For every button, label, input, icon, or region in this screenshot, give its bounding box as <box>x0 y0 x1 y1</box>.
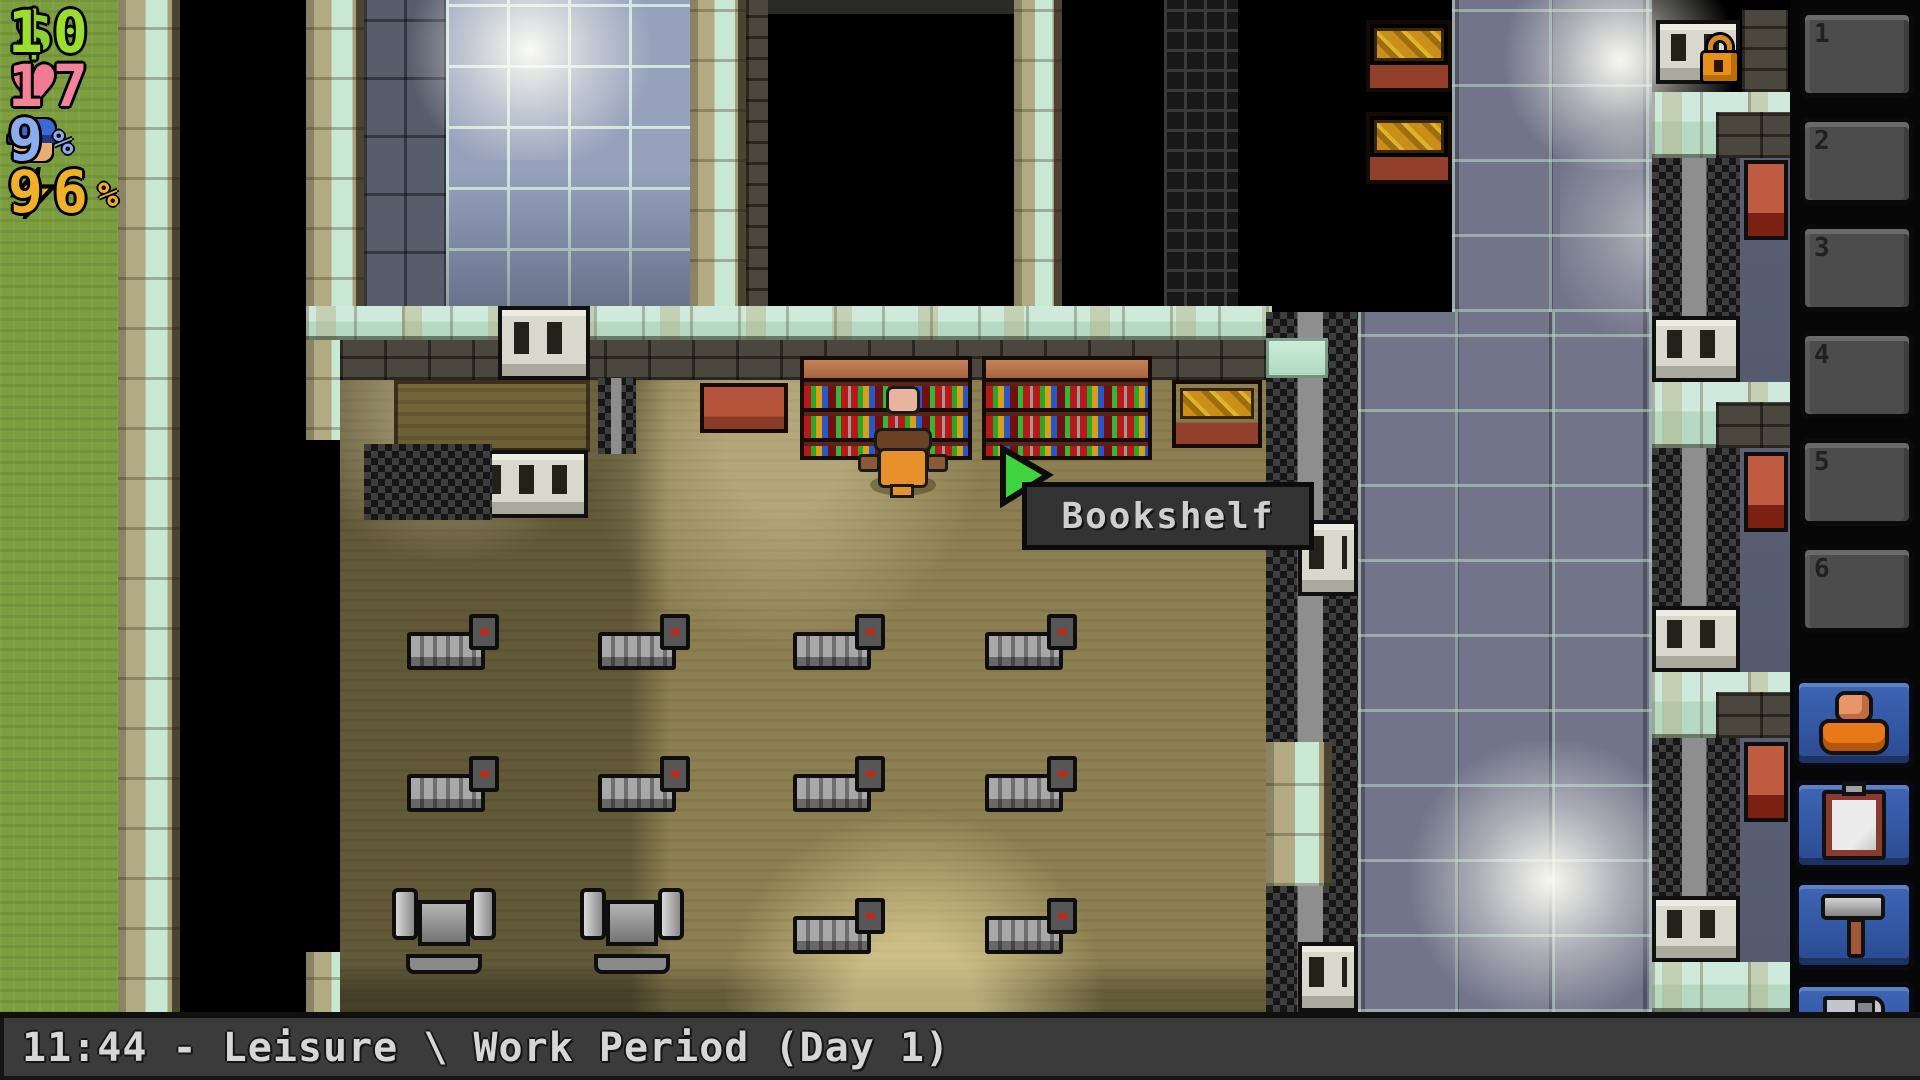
stone-wall <box>364 0 446 312</box>
stone-wall <box>1716 112 1790 158</box>
stone-wall <box>746 0 768 312</box>
chain-fence <box>598 378 636 454</box>
inventory-slot-5[interactable]: 5 <box>1800 438 1914 526</box>
wooden-desk[interactable] <box>1366 20 1452 92</box>
library-bench[interactable] <box>407 756 499 812</box>
character-arm <box>858 454 880 472</box>
wall-band <box>306 306 1272 340</box>
library-bench[interactable] <box>793 898 885 954</box>
wooden-desk[interactable] <box>1366 112 1452 184</box>
object-tooltip: Bookshelf <box>1022 482 1314 550</box>
cell-door[interactable] <box>1652 606 1740 672</box>
prison-bed[interactable] <box>1744 452 1788 532</box>
book-row <box>986 386 1148 412</box>
chain-fence <box>364 444 492 520</box>
hud-energy: 96% <box>8 166 60 220</box>
padlock-icon[interactable] <box>1700 50 1740 84</box>
status-bar: 11:44 - Leisure \ Work Period (Day 1) <box>0 1012 1920 1080</box>
library-bench[interactable] <box>598 756 690 812</box>
inventory-slot-4[interactable]: 4 <box>1800 331 1914 419</box>
journal-button[interactable] <box>1794 780 1914 870</box>
chain-fence <box>1652 448 1740 606</box>
entry-floor <box>394 380 590 452</box>
character-head <box>886 386 920 414</box>
wall-column <box>1014 0 1062 312</box>
character-arm <box>926 454 948 472</box>
tiled-hall <box>1358 312 1652 1012</box>
glass-tile-room <box>446 0 690 312</box>
wooden-desk[interactable] <box>1172 380 1262 448</box>
chain-fence <box>1652 738 1740 896</box>
prison-bed[interactable] <box>1744 160 1788 240</box>
library-bench[interactable] <box>793 756 885 812</box>
library-bench[interactable] <box>598 614 690 670</box>
dark-desk[interactable] <box>1742 10 1788 92</box>
prisoner-profile-button[interactable] <box>1794 678 1914 768</box>
tiled-hall <box>1452 0 1652 312</box>
crafting-button[interactable] <box>1794 880 1914 970</box>
clipboard-icon <box>1822 790 1886 860</box>
inventory-slot-3[interactable]: 3 <box>1800 224 1914 312</box>
vent-grate <box>1164 0 1238 312</box>
inventory-slot-1[interactable]: 1 <box>1800 10 1914 98</box>
barred-door[interactable] <box>498 306 590 380</box>
library-bench[interactable] <box>985 898 1077 954</box>
library-bench[interactable] <box>985 756 1077 812</box>
library-bench[interactable] <box>407 614 499 670</box>
stone-wall <box>1716 402 1790 448</box>
red-table[interactable] <box>700 383 788 433</box>
wall-column <box>690 0 746 312</box>
prison-bed[interactable] <box>1744 742 1788 822</box>
cell-door[interactable] <box>1652 316 1740 382</box>
status-bar-text: 11:44 - Leisure \ Work Period (Day 1) <box>0 1018 950 1078</box>
inventory-slot-6[interactable]: 6 <box>1800 545 1914 633</box>
barred-door[interactable] <box>1298 942 1358 1012</box>
library-bench[interactable] <box>793 614 885 670</box>
stone-wall <box>1716 692 1790 738</box>
wall-segment <box>1266 742 1332 886</box>
chain-fence <box>1652 158 1740 316</box>
character-torso <box>878 448 928 488</box>
glass-block <box>1266 338 1328 378</box>
prisoner-character[interactable] <box>858 378 948 504</box>
book-row <box>986 416 1148 442</box>
chain-fence <box>1266 312 1358 1012</box>
cell-door[interactable] <box>1652 896 1740 962</box>
game-screen: Bookshelf $ 10 ♥ 17 9% 96% 1 2 3 4 5 6 <box>0 0 1920 1080</box>
unexplored-room <box>768 0 1014 312</box>
grinder-machine[interactable] <box>580 884 684 976</box>
shelf-top <box>986 360 1148 382</box>
prisoner-icon <box>1819 691 1889 755</box>
cell-wall <box>1652 962 1790 1012</box>
tooltip-label: Bookshelf <box>1061 496 1274 537</box>
library-bench[interactable] <box>985 614 1077 670</box>
hammer-icon <box>1819 890 1889 960</box>
hud: $ 10 ♥ 17 9% 96% <box>0 0 300 360</box>
grinder-machine[interactable] <box>392 884 496 976</box>
energy-value: 96% <box>8 165 118 222</box>
character-feet <box>890 484 914 498</box>
inventory-slot-2[interactable]: 2 <box>1800 117 1914 205</box>
